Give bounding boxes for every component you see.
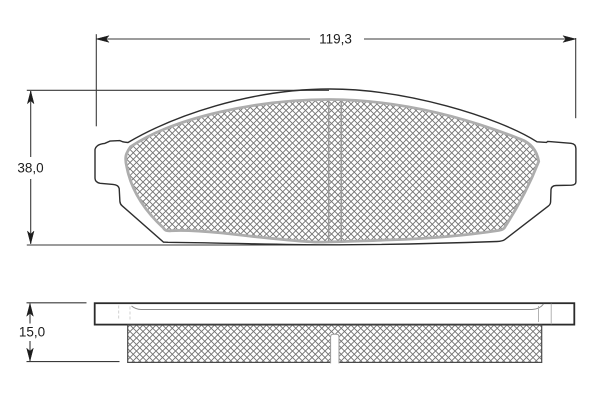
svg-text:15,0: 15,0 [19,325,45,340]
svg-text:119,3: 119,3 [319,32,352,47]
svg-text:38,0: 38,0 [17,161,43,176]
